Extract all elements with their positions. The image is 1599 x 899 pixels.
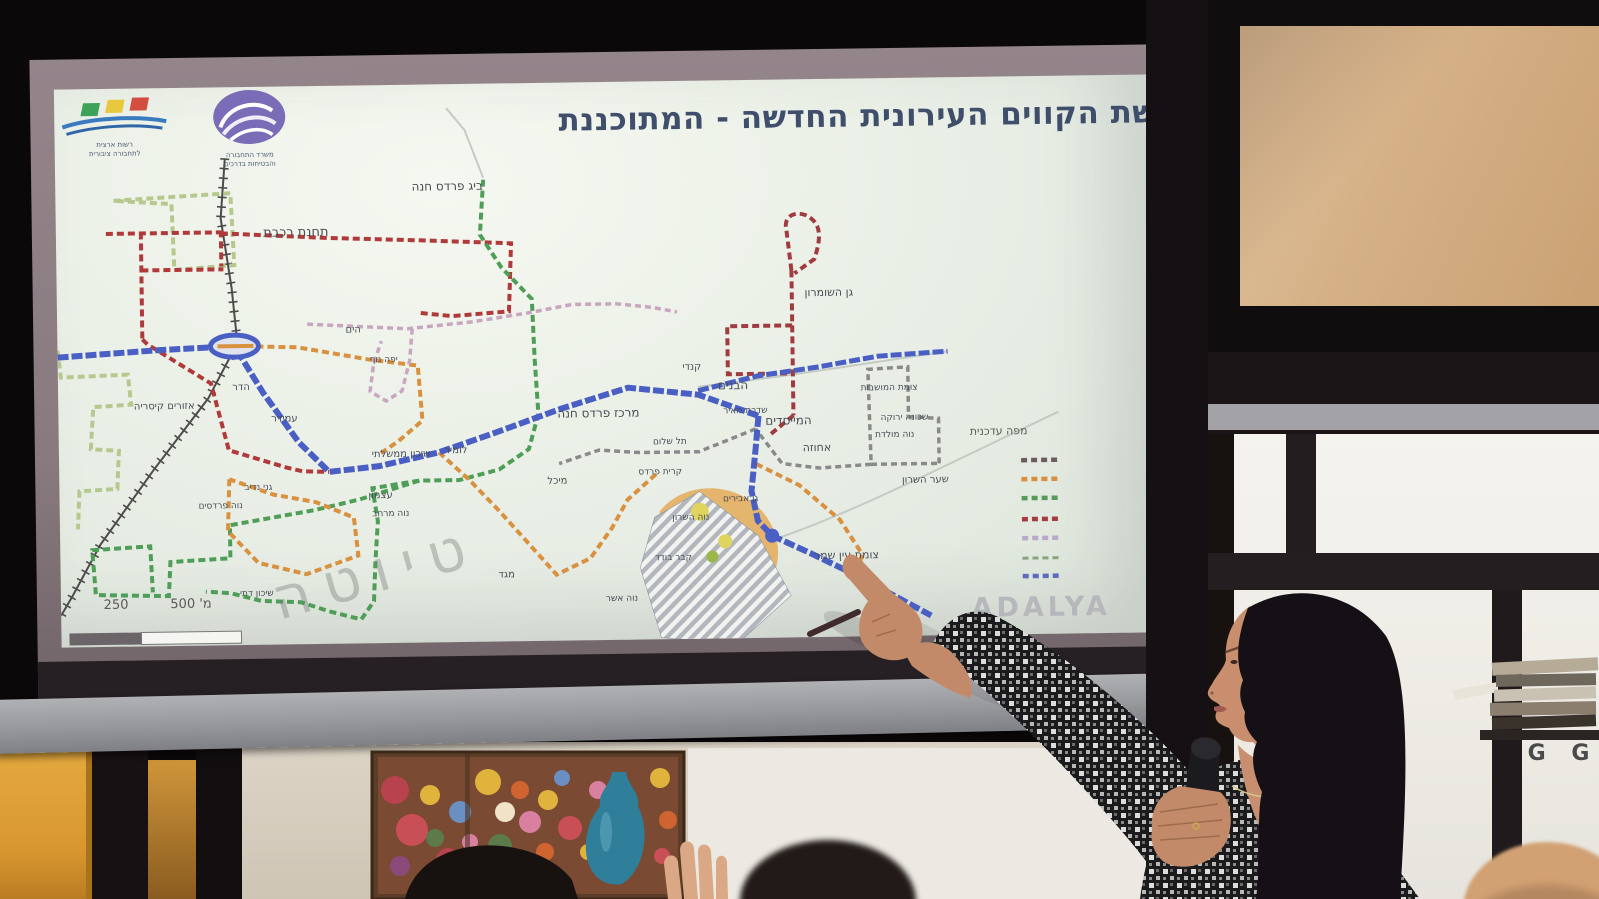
scale-right: מ' 500 xyxy=(170,597,212,613)
map-label: נוה מרחב xyxy=(372,509,409,520)
slide: שת הקווים העירונית החדשה - המתוכננת רשות… xyxy=(54,74,1156,647)
map-label: אחוזה xyxy=(803,441,832,454)
map-label: עמידר xyxy=(271,413,298,424)
tan-wall-pane xyxy=(1240,26,1599,306)
map-label: תל שלום xyxy=(653,437,687,447)
map-label: לומיר xyxy=(444,445,467,456)
map-label: שדרת מאיר xyxy=(723,406,768,417)
map-label: נוה מולדת xyxy=(875,430,914,441)
development-area xyxy=(639,487,791,645)
map-label: תחנת רכבת xyxy=(263,225,328,241)
map-label: עצמון xyxy=(368,490,393,501)
window-mullion-vertical-2 xyxy=(1492,590,1522,899)
map-label: נוה פרדסים xyxy=(198,501,242,512)
map-label: נוה אשר xyxy=(606,594,638,604)
map-label: מגד xyxy=(498,569,515,580)
map-label: הים xyxy=(345,324,361,335)
legend-color-sample xyxy=(1022,558,1058,559)
legend-color-sample xyxy=(1021,460,1057,461)
map-label: נוה השרון xyxy=(672,513,709,524)
map-label: המייסדים xyxy=(765,413,812,428)
map-labels-layer: תחנת רכבתביג פרדס חנהגן השומרוןקנדיהבנים… xyxy=(131,172,951,610)
route-darkred xyxy=(726,213,822,436)
scale-bar-light xyxy=(141,631,241,644)
amber-glow-panel xyxy=(148,760,196,899)
map-label: ביג פרדס חנה xyxy=(411,179,483,194)
consultant-logo: ADALYA xyxy=(971,591,1110,624)
wall-post-dark xyxy=(1146,0,1208,899)
map-label: יפה נוף xyxy=(369,355,397,365)
route-pink xyxy=(307,303,678,402)
map-label: גן השומרון xyxy=(804,286,853,300)
window-frame-middle xyxy=(1208,352,1599,434)
whiteboard-panel xyxy=(688,748,1150,899)
map-label: שיכון דתי xyxy=(240,589,274,599)
map-label: מרכז פרדס חנה xyxy=(557,406,639,421)
map-label: שיכון ממשלתי xyxy=(372,448,431,460)
door-frame-post-2 xyxy=(196,742,242,899)
transit-map: טיוטה מפה עדכנית 250 מ' 500 ADALYA תחנת … xyxy=(54,74,1156,647)
legend-color-sample xyxy=(1022,498,1058,499)
door-frame-post xyxy=(92,742,148,899)
route-red xyxy=(106,226,514,475)
map-label: אזורים קיסריה xyxy=(134,401,195,413)
map-label: גן אבירים xyxy=(723,494,759,504)
window-top-right xyxy=(1208,0,1599,352)
legend-color-sample xyxy=(1021,479,1057,480)
legend-color-sample xyxy=(1022,519,1058,520)
legend-color-sample xyxy=(1022,538,1058,539)
scale-left: 250 xyxy=(104,598,129,613)
scale-bar-dark xyxy=(69,632,141,645)
map-label: הבנים xyxy=(718,378,748,392)
junction-orange-mark xyxy=(217,346,253,347)
map-label: צומת עין שמר xyxy=(814,548,879,562)
window-frame-left xyxy=(1208,434,1234,899)
window-bright xyxy=(1208,434,1599,899)
map-label: שכונה ירוקה xyxy=(881,412,929,423)
window-frame-strip xyxy=(1208,404,1599,430)
classroom-presentation-photo: שת הקווים העירונית החדשה - המתוכננת רשות… xyxy=(0,0,1599,899)
map-label: מיכל xyxy=(547,476,567,487)
map-label: קרית פרדס xyxy=(638,467,682,478)
map-label: קנדי xyxy=(682,362,701,373)
map-label: גני נדיב xyxy=(244,483,272,493)
map-label: הדר xyxy=(232,382,250,393)
map-label: קבר בודד xyxy=(655,553,692,564)
legend-color-sample xyxy=(1023,576,1059,577)
legend-title: מפה עדכנית xyxy=(970,424,1028,438)
map-label: צומת המושבות xyxy=(860,383,917,394)
window-mullion-horizontal xyxy=(1208,553,1599,590)
projection-screen: שת הקווים העירונית החדשה - המתוכננת רשות… xyxy=(29,44,1180,724)
scale-bar: 250 מ' 500 xyxy=(69,596,242,645)
yellow-door xyxy=(0,742,92,899)
map-label: שער השרון xyxy=(902,474,949,486)
